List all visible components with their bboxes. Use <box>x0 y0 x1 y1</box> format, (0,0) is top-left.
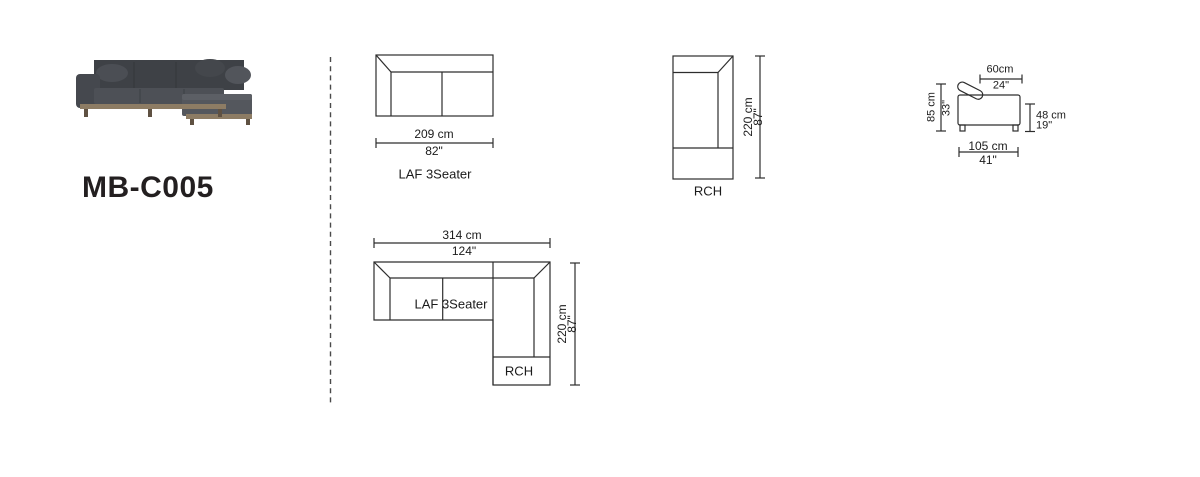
side-body-outline <box>958 95 1020 125</box>
seat-height-in: 19" <box>1036 121 1052 132</box>
model-number: MB-C005 <box>82 171 214 205</box>
back-cushion-outline <box>956 81 984 101</box>
spec-sheet: MB-C005 209 cm 82" LAF 3Seater 220 cm 87… <box>0 0 1200 477</box>
linework-layer <box>0 0 1200 477</box>
overall-depth-in: 41" <box>979 154 997 166</box>
combined-chaise-label: RCH <box>505 365 533 378</box>
overall-depth-cm: 105 cm <box>968 140 1007 152</box>
seat-height-dimension-line <box>1025 104 1035 132</box>
combined-sofa-label: LAF 3Seater <box>415 298 488 311</box>
rch-label: RCH <box>694 185 722 198</box>
sofa-photo <box>76 59 252 125</box>
laf-label: LAF 3Seater <box>399 168 472 181</box>
combined-depth-in: 87" <box>566 315 578 333</box>
seat-depth-cm: 60cm <box>987 65 1014 76</box>
laf-width-cm: 209 cm <box>414 128 453 140</box>
throw-pillow <box>96 64 128 82</box>
throw-pillow <box>225 66 251 84</box>
sofa-base-rail <box>80 104 226 109</box>
seat-depth-in: 24" <box>993 81 1009 92</box>
combined-top-view-drawing <box>374 238 580 385</box>
laf-width-in: 82" <box>425 145 443 157</box>
throw-pillow <box>195 59 225 77</box>
rch-depth-in: 87" <box>752 108 764 126</box>
overall-height-in: 33" <box>942 100 953 116</box>
combined-width-cm: 314 cm <box>442 229 481 241</box>
combined-width-in: 124" <box>452 245 476 257</box>
overall-height-cm: 85 cm <box>927 92 938 122</box>
